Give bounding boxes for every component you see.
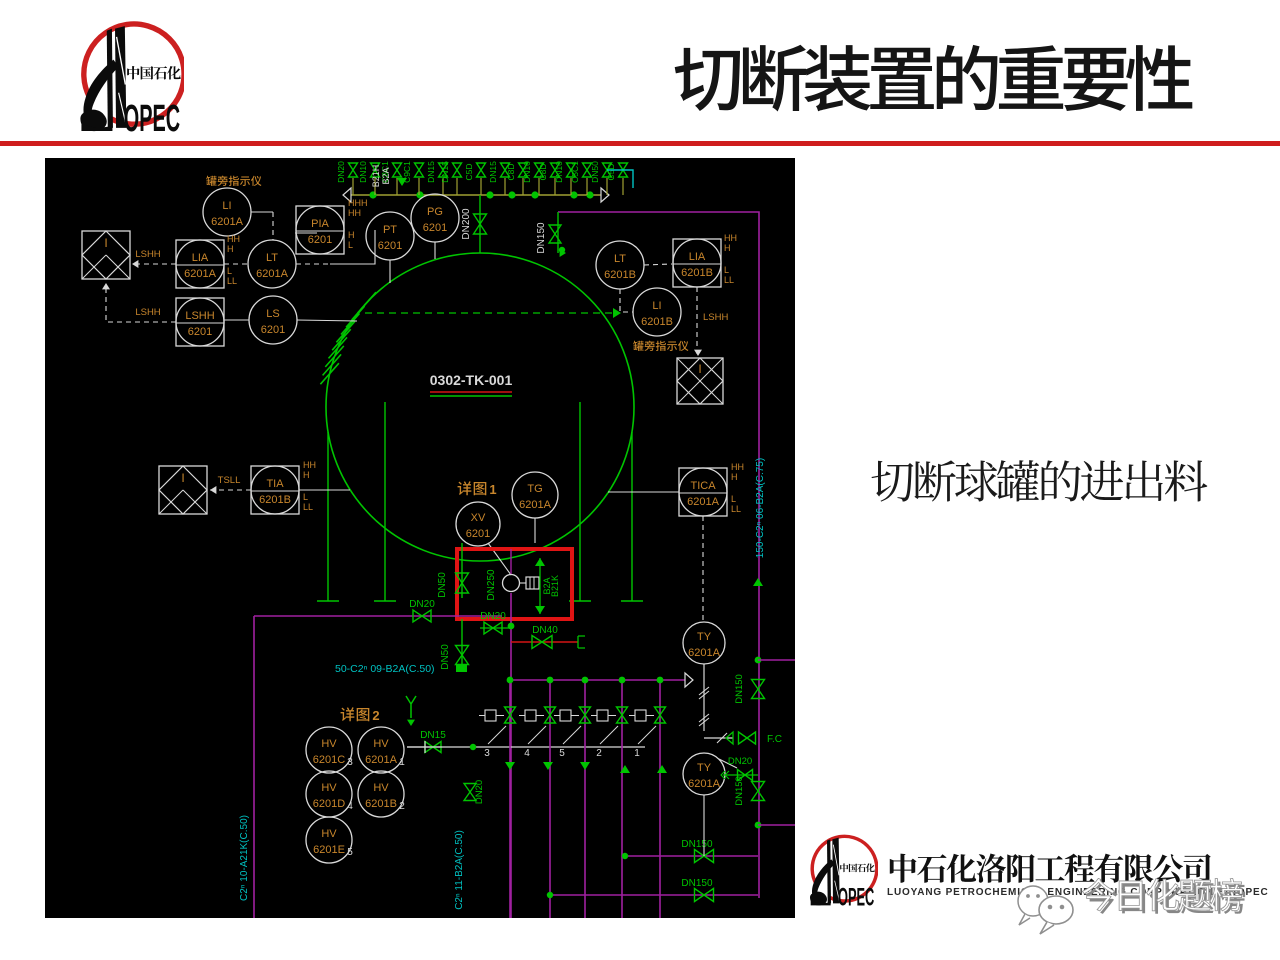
svg-text:LL: LL [724,275,734,285]
svg-text:TY: TY [697,631,712,643]
svg-text:L: L [724,265,729,275]
svg-text:HH: HH [227,234,240,244]
svg-text:DN150: DN150 [681,878,713,889]
svg-text:2: 2 [596,748,602,759]
svg-text:6201A: 6201A [687,496,719,508]
svg-text:F.C: F.C [767,734,782,745]
svg-text:6201A: 6201A [519,499,551,511]
svg-text:L: L [227,266,232,276]
svg-text:DN15: DN15 [488,161,498,183]
svg-text:C5C1: C5C1 [570,161,580,183]
svg-text:HH: HH [303,460,316,470]
svg-text:DN15: DN15 [426,161,436,183]
svg-text:HH: HH [724,233,737,243]
svg-text:LL: LL [731,504,741,514]
svg-text:PT: PT [383,224,397,236]
svg-text:4: 4 [524,748,530,759]
svg-text:DN150: DN150 [536,222,547,254]
svg-text:C8D: C8D [506,163,516,180]
svg-text:L: L [303,492,308,502]
svg-text:6201: 6201 [378,240,402,252]
svg-text:HH: HH [348,208,361,218]
svg-text:1: 1 [489,482,496,497]
svg-text:6201: 6201 [308,234,332,246]
svg-text:TIA: TIA [266,478,284,490]
svg-text:6201B: 6201B [681,267,713,279]
svg-text:PG: PG [427,206,443,218]
svg-text:0302-TK-001: 0302-TK-001 [430,372,513,388]
svg-text:DN20: DN20 [480,611,506,622]
svg-text:I: I [698,362,701,376]
svg-text:DN150: DN150 [734,776,745,806]
svg-text:I: I [104,236,107,250]
svg-text:6201: 6201 [466,528,490,540]
svg-text:LL: LL [227,276,237,286]
svg-text:DN150: DN150 [734,674,745,704]
svg-text:LT: LT [614,253,626,265]
svg-text:C2ⁿ 10-A21K(C.50): C2ⁿ 10-A21K(C.50) [239,815,250,901]
svg-text:LI: LI [222,200,231,212]
svg-text:DN40: DN40 [532,625,558,636]
svg-text:LSHH: LSHH [703,312,728,323]
svg-text:L: L [348,240,353,250]
svg-text:6201C: 6201C [313,754,345,766]
svg-text:HV: HV [373,738,389,750]
svg-text:3: 3 [347,757,353,768]
svg-text:HH: HH [731,462,744,472]
svg-text:LIA: LIA [192,252,209,264]
svg-text:DN10: DN10 [554,161,564,183]
svg-text:DN20: DN20 [728,756,752,767]
svg-text:LSHH: LSHH [135,307,160,318]
svg-text:HV: HV [321,738,337,750]
svg-text:DN20: DN20 [474,780,485,804]
svg-text:DN15: DN15 [420,730,446,741]
svg-text:DN50: DN50 [590,161,600,183]
svg-text:LSHH: LSHH [185,310,214,322]
svg-text:H: H [348,230,355,240]
svg-text:LSHH: LSHH [135,249,160,260]
svg-text:TG: TG [527,483,542,495]
svg-text:HV: HV [373,782,389,794]
svg-text:6201A: 6201A [256,268,288,280]
svg-text:150-C2ⁿ 06-B2A(C.75): 150-C2ⁿ 06-B2A(C.75) [755,458,766,558]
svg-text:5: 5 [559,748,565,759]
svg-text:DN20: DN20 [336,161,346,183]
svg-text:2: 2 [372,708,379,723]
svg-text:HHH: HHH [348,198,368,208]
svg-text:6201A: 6201A [688,778,720,790]
svg-text:B2A: B2A [381,167,391,184]
svg-text:6201: 6201 [261,324,285,336]
svg-text:6201A: 6201A [688,647,720,659]
svg-text:DN200: DN200 [461,208,472,240]
svg-text:6201B: 6201B [604,269,636,281]
svg-text:DN10: DN10 [522,161,532,183]
svg-text:DN50: DN50 [437,572,448,598]
svg-text:B21H: B21H [371,165,381,188]
svg-text:LIA: LIA [689,251,706,263]
svg-text:DN150: DN150 [681,839,713,850]
svg-text:5: 5 [347,847,353,858]
svg-text:DN20: DN20 [409,599,435,610]
svg-text:6201B: 6201B [259,494,291,506]
svg-text:6201A: 6201A [365,754,397,766]
svg-text:C5D: C5D [464,163,474,180]
svg-text:6201: 6201 [423,222,447,234]
svg-text:H: H [731,472,738,482]
svg-text:OPEC: OPEC [124,97,180,132]
svg-text:1: 1 [399,757,405,768]
svg-text:3: 3 [484,748,490,759]
svg-text:H: H [227,244,234,254]
svg-text:6201: 6201 [188,326,212,338]
svg-text:H: H [724,243,731,253]
svg-text:6201B: 6201B [641,316,673,328]
svg-text:50-C2ⁿ 09-B2A(C.50): 50-C2ⁿ 09-B2A(C.50) [335,663,435,675]
svg-text:XV: XV [471,512,486,524]
svg-text:6201D: 6201D [313,798,345,810]
svg-text:TY: TY [697,762,712,774]
svg-text:2: 2 [399,801,405,812]
svg-text:6201A: 6201A [211,216,243,228]
svg-text:4: 4 [347,801,353,812]
svg-text:LS: LS [266,308,279,320]
svg-text:HV: HV [321,782,337,794]
svg-text:TSLL: TSLL [218,475,241,486]
svg-text:PIA: PIA [311,218,329,230]
svg-text:B21K: B21K [550,575,560,597]
svg-text:6201E: 6201E [313,844,345,856]
svg-text:LT: LT [266,252,278,264]
svg-text:LI: LI [652,300,661,312]
svg-text:DN15: DN15 [440,161,450,183]
svg-text:L: L [731,494,736,504]
svg-text:6201B: 6201B [365,798,397,810]
svg-text:HV: HV [321,828,337,840]
svg-text:C5D: C5D [606,163,616,180]
svg-text:TICA: TICA [690,480,716,492]
svg-text:DN50: DN50 [440,644,451,670]
svg-text:LL: LL [303,502,313,512]
svg-text:DN10: DN10 [358,161,368,183]
svg-text:DN250: DN250 [486,569,497,601]
svg-text:6201A: 6201A [184,268,216,280]
svg-text:1: 1 [634,748,640,759]
svg-text:C8D: C8D [538,163,548,180]
svg-text:H: H [303,470,310,480]
svg-text:C2ⁿ 11-B2A(C.50): C2ⁿ 11-B2A(C.50) [454,830,465,910]
svg-text:I: I [181,471,184,485]
